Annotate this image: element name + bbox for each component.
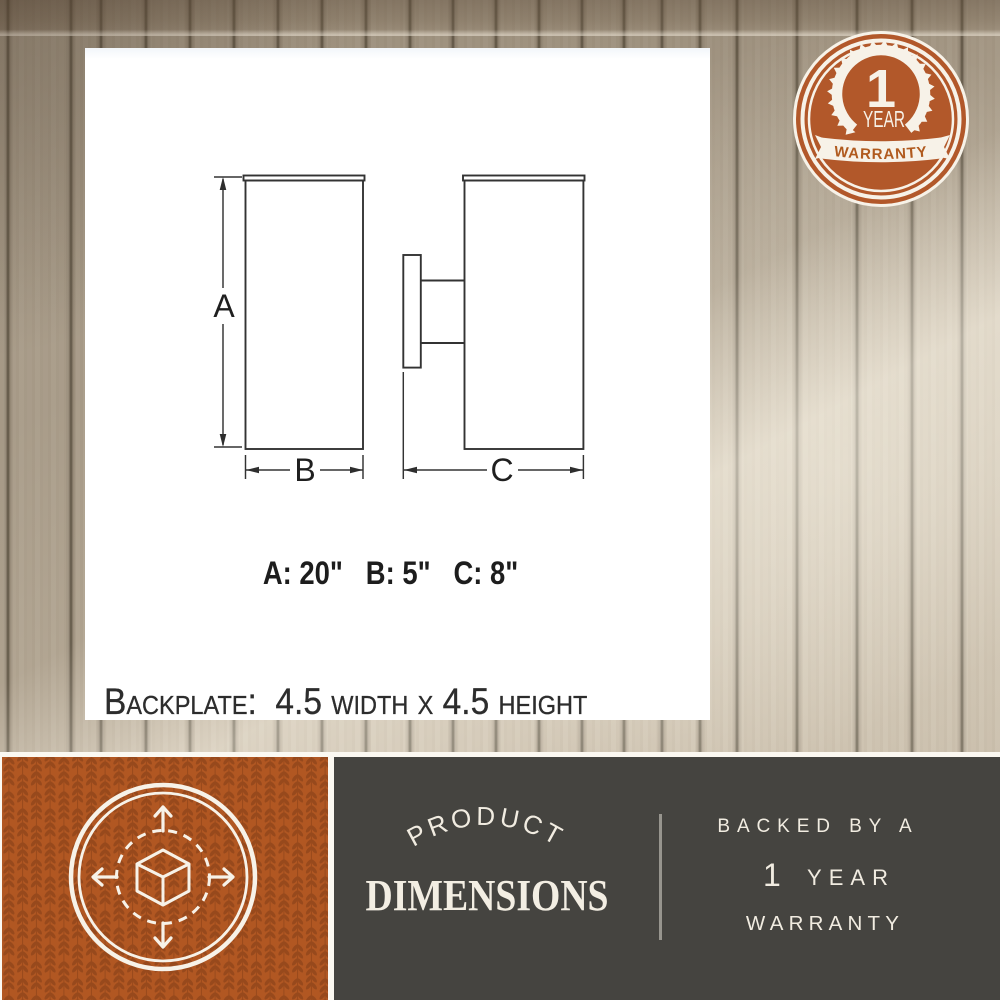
svg-text:WARRANTY: WARRANTY — [833, 143, 928, 163]
svg-text:C: C — [490, 452, 513, 488]
svg-text:A: A — [213, 288, 235, 324]
svg-text:B: B — [294, 452, 315, 488]
svg-text:PRODUCT: PRODUCT — [402, 801, 570, 852]
svg-text:YEAR: YEAR — [863, 106, 905, 132]
